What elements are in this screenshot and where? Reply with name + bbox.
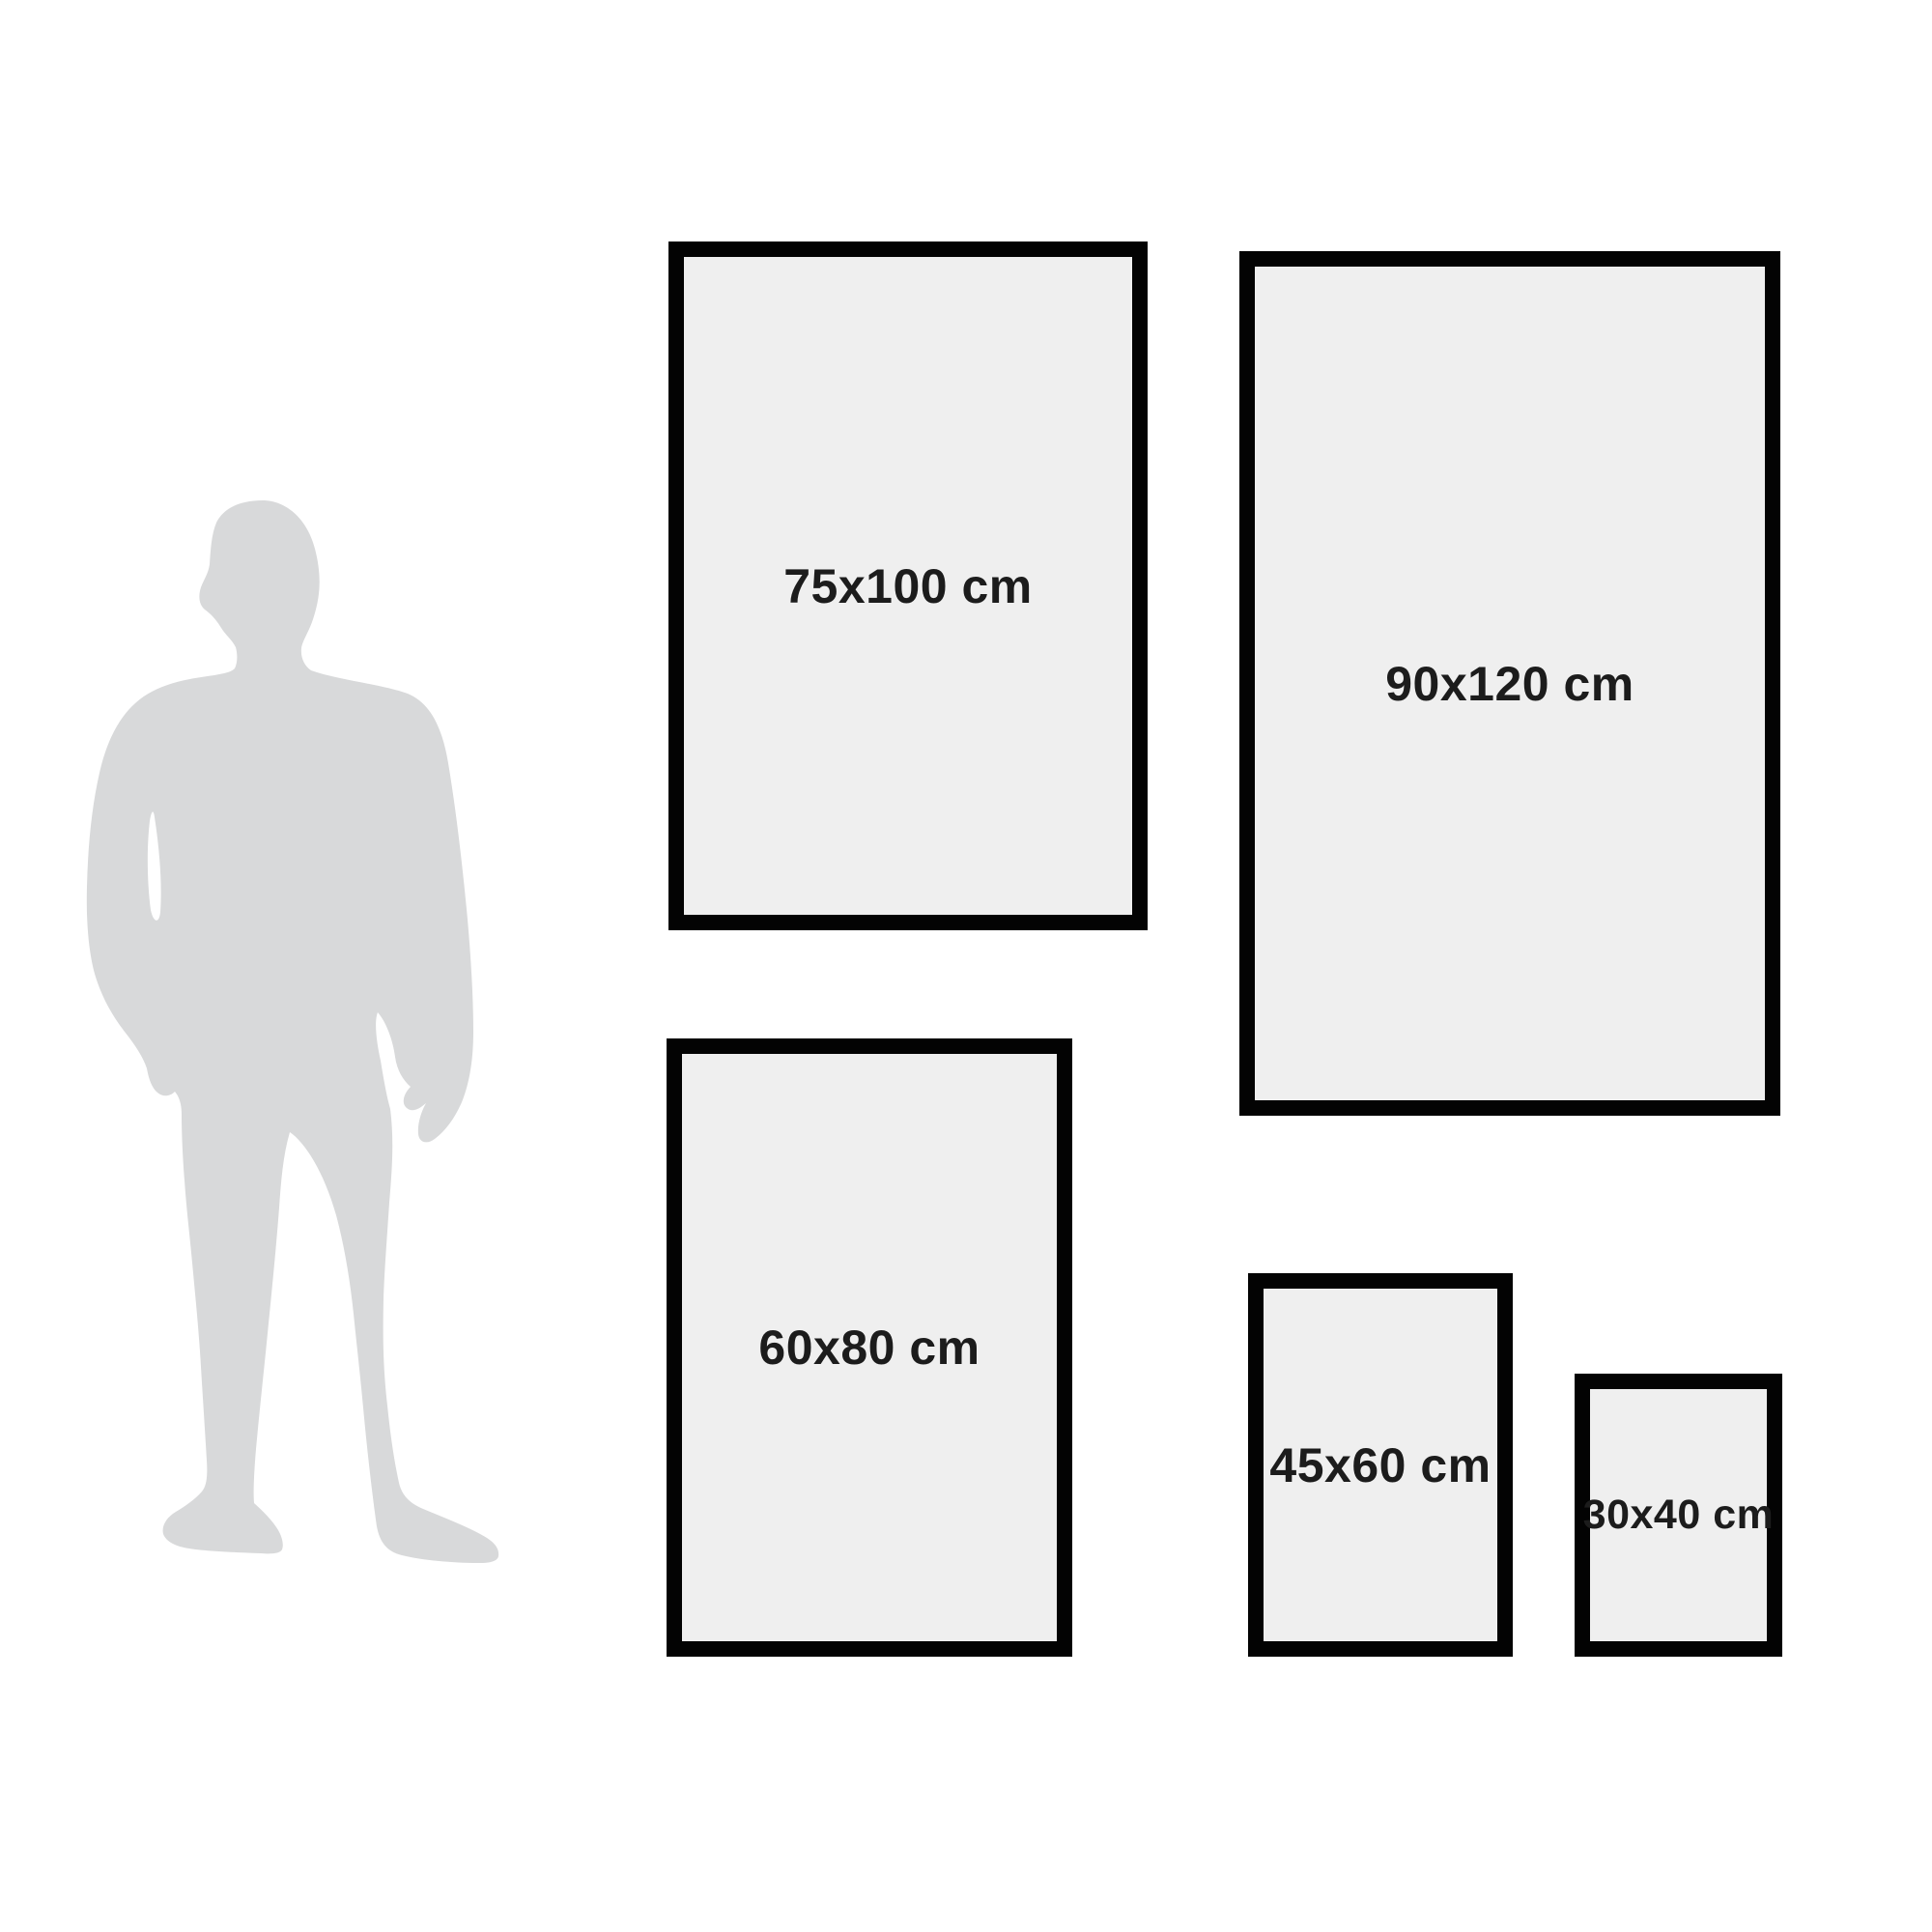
size-frame-60x80: 60x80 cm [667,1038,1072,1657]
size-frame-30x40: 30x40 cm [1575,1374,1782,1657]
size-label-45x60: 45x60 cm [1269,1437,1491,1493]
size-frame-90x120: 90x120 cm [1239,251,1780,1116]
size-frame-75x100: 75x100 cm [668,241,1148,930]
size-label-75x100: 75x100 cm [783,558,1033,614]
size-frame-45x60: 45x60 cm [1248,1273,1513,1657]
size-label-90x120: 90x120 cm [1385,656,1634,712]
poster-size-guide: 75x100 cm 90x120 cm 60x80 cm 45x60 cm 30… [0,0,1932,1932]
man-silhouette-icon [82,493,512,1570]
size-label-30x40: 30x40 cm [1583,1492,1775,1539]
size-label-60x80: 60x80 cm [758,1320,980,1376]
